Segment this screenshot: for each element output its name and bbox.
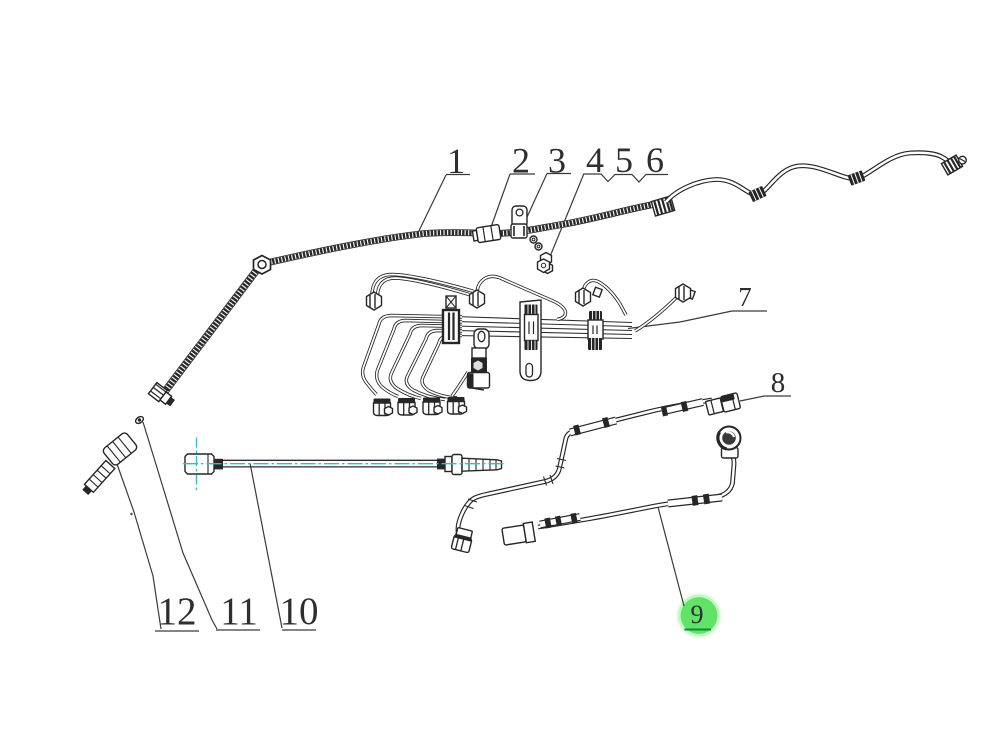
svg-text:7: 7 xyxy=(738,282,752,312)
svg-text:11: 11 xyxy=(220,590,258,633)
svg-text:10: 10 xyxy=(280,590,319,633)
svg-text:8: 8 xyxy=(771,367,786,399)
svg-text:12: 12 xyxy=(158,590,197,633)
svg-text:9: 9 xyxy=(691,600,704,629)
svg-text:3: 3 xyxy=(548,141,566,181)
